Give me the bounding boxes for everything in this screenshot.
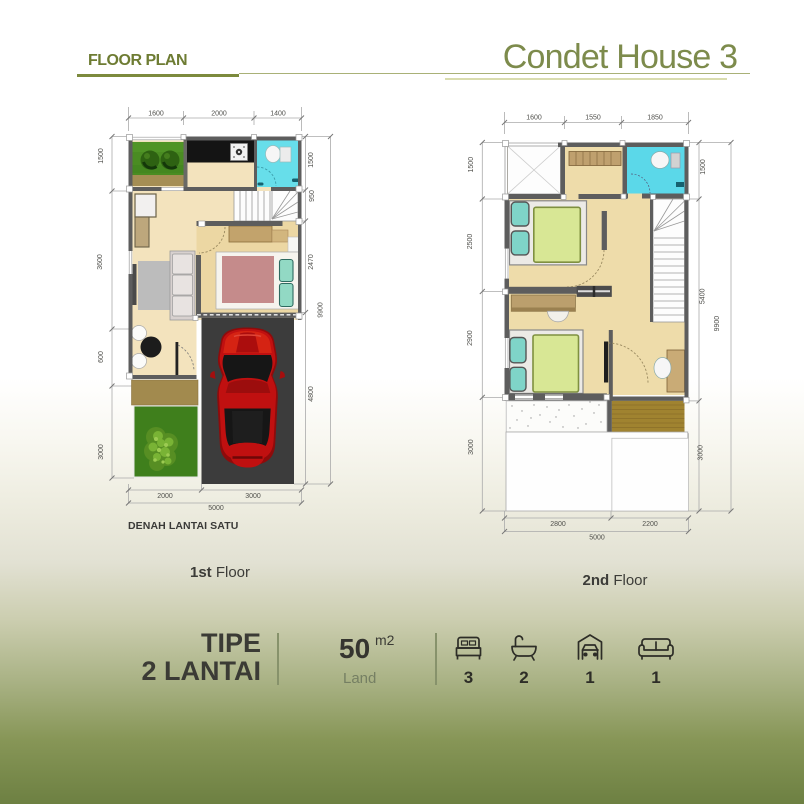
svg-text:2470: 2470 (308, 254, 315, 270)
svg-text:1850: 1850 (647, 115, 663, 122)
svg-text:5400: 5400 (700, 288, 707, 304)
svg-text:1: 1 (585, 668, 594, 687)
svg-text:2900: 2900 (467, 330, 474, 346)
svg-text:9900: 9900 (318, 302, 325, 318)
svg-text:3000: 3000 (98, 444, 105, 460)
svg-text:1600: 1600 (148, 111, 164, 118)
svg-text:2500: 2500 (467, 234, 474, 250)
svg-text:1500: 1500 (98, 148, 105, 164)
svg-text:2000: 2000 (211, 111, 227, 118)
svg-text:600: 600 (98, 351, 105, 363)
svg-text:5000: 5000 (208, 505, 224, 512)
svg-text:1: 1 (651, 668, 660, 687)
svg-text:3600: 3600 (97, 254, 104, 270)
svg-text:950: 950 (309, 190, 316, 202)
svg-text:1500: 1500 (468, 157, 475, 173)
svg-text:3000: 3000 (245, 493, 261, 500)
svg-text:2200: 2200 (642, 521, 658, 528)
svg-text:2800: 2800 (550, 521, 566, 528)
svg-text:3000: 3000 (698, 445, 705, 461)
svg-text:1500: 1500 (308, 152, 315, 168)
svg-text:9900: 9900 (714, 316, 721, 332)
svg-text:3: 3 (464, 668, 473, 687)
svg-text:1500: 1500 (700, 159, 707, 175)
svg-text:1600: 1600 (526, 115, 542, 122)
svg-text:5000: 5000 (589, 535, 605, 542)
svg-text:1400: 1400 (270, 111, 286, 118)
svg-text:1550: 1550 (585, 115, 601, 122)
svg-text:2000: 2000 (157, 493, 173, 500)
svg-text:4800: 4800 (308, 386, 315, 402)
svg-text:3000: 3000 (468, 439, 475, 455)
svg-text:2: 2 (519, 668, 528, 687)
